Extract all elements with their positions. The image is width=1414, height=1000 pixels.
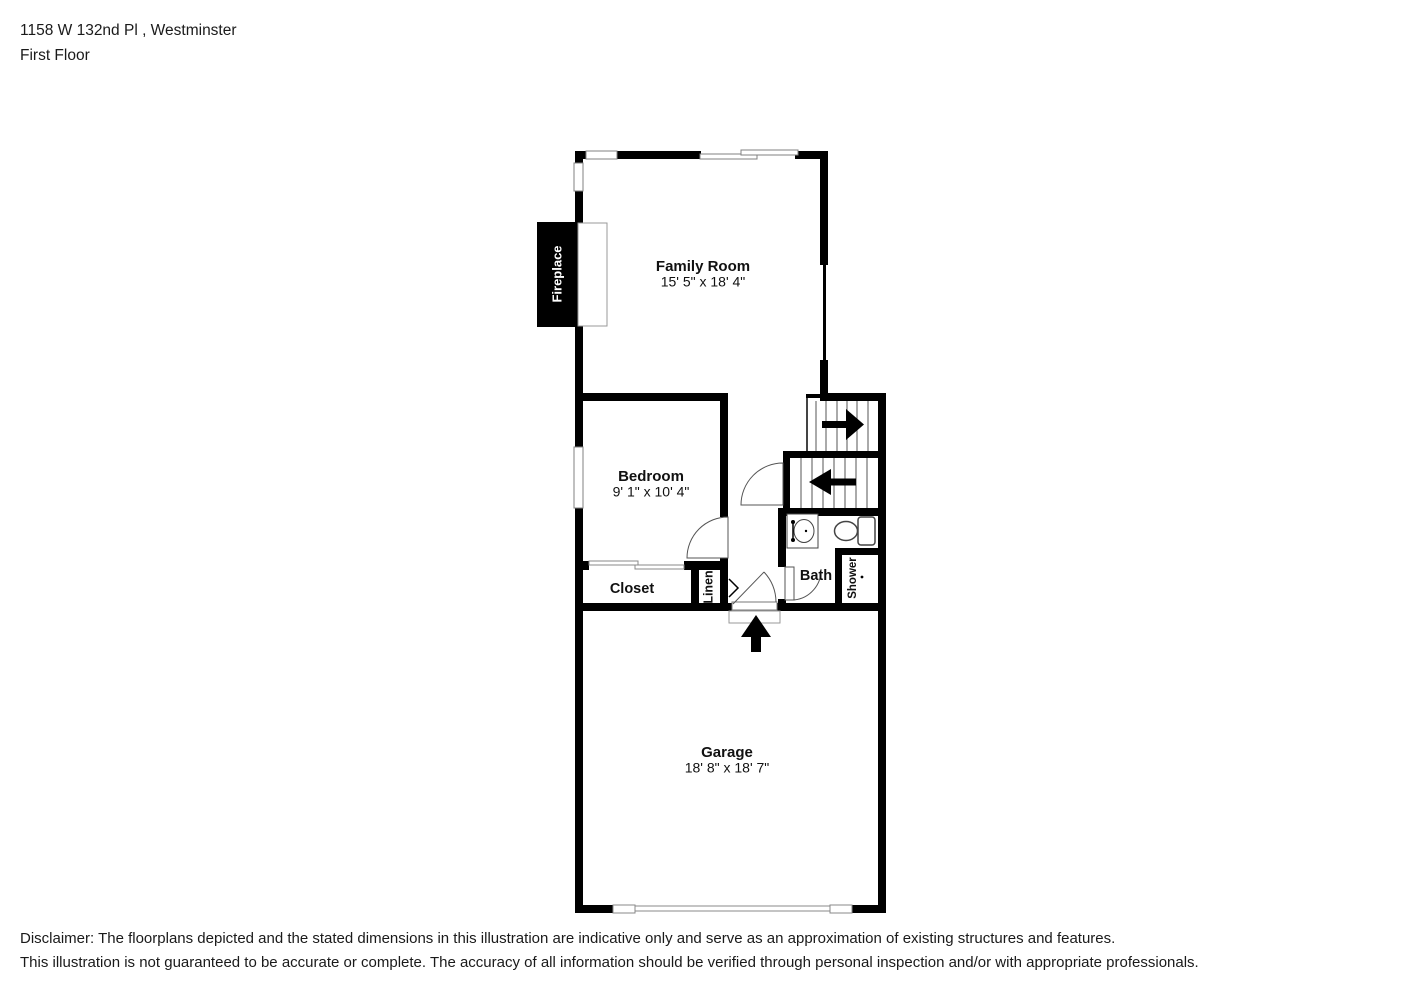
linen-door-chevron	[729, 579, 738, 597]
window	[586, 151, 617, 159]
floor-plan: Fireplace	[0, 0, 1414, 1000]
shower-label: Shower	[847, 557, 859, 599]
closet-sliding-door	[589, 561, 684, 569]
bedroom-label: Bedroom	[618, 468, 684, 485]
shower-head-dot	[861, 576, 864, 579]
windows	[574, 150, 798, 508]
front-door-threshold	[732, 602, 777, 610]
linen-label: Linen	[701, 570, 715, 603]
sink-icon	[787, 514, 818, 548]
stairs-up-arrow-icon	[822, 409, 864, 440]
bedroom-door-arc	[687, 517, 728, 558]
bedroom-dims: 9' 1" x 10' 4"	[613, 484, 690, 500]
window	[741, 150, 798, 155]
disclaimer-line-1: Disclaimer: The floorplans depicted and …	[20, 930, 1115, 947]
garage-label: Garage	[701, 744, 753, 761]
closet-label: Closet	[610, 581, 654, 597]
fireplace-hearth	[578, 223, 607, 326]
bath-door-leaf	[785, 567, 794, 600]
stairs-down-arrow-icon	[809, 469, 856, 495]
stair-door-arc	[741, 463, 783, 505]
toilet-icon	[835, 517, 876, 545]
fireplace-label: Fireplace	[549, 245, 564, 302]
garage-door	[613, 905, 852, 913]
garage-dims: 18' 8" x 18' 7"	[685, 760, 770, 776]
family-room-dims: 15' 5" x 18' 4"	[661, 274, 746, 290]
fireplace: Fireplace	[537, 222, 607, 327]
window	[574, 447, 583, 508]
disclaimer-line-2: This illustration is not guaranteed to b…	[20, 954, 1199, 971]
window	[574, 163, 583, 191]
family-room-label: Family Room	[656, 258, 750, 275]
bath-label: Bath	[800, 568, 832, 584]
front-door-arc	[764, 572, 776, 602]
